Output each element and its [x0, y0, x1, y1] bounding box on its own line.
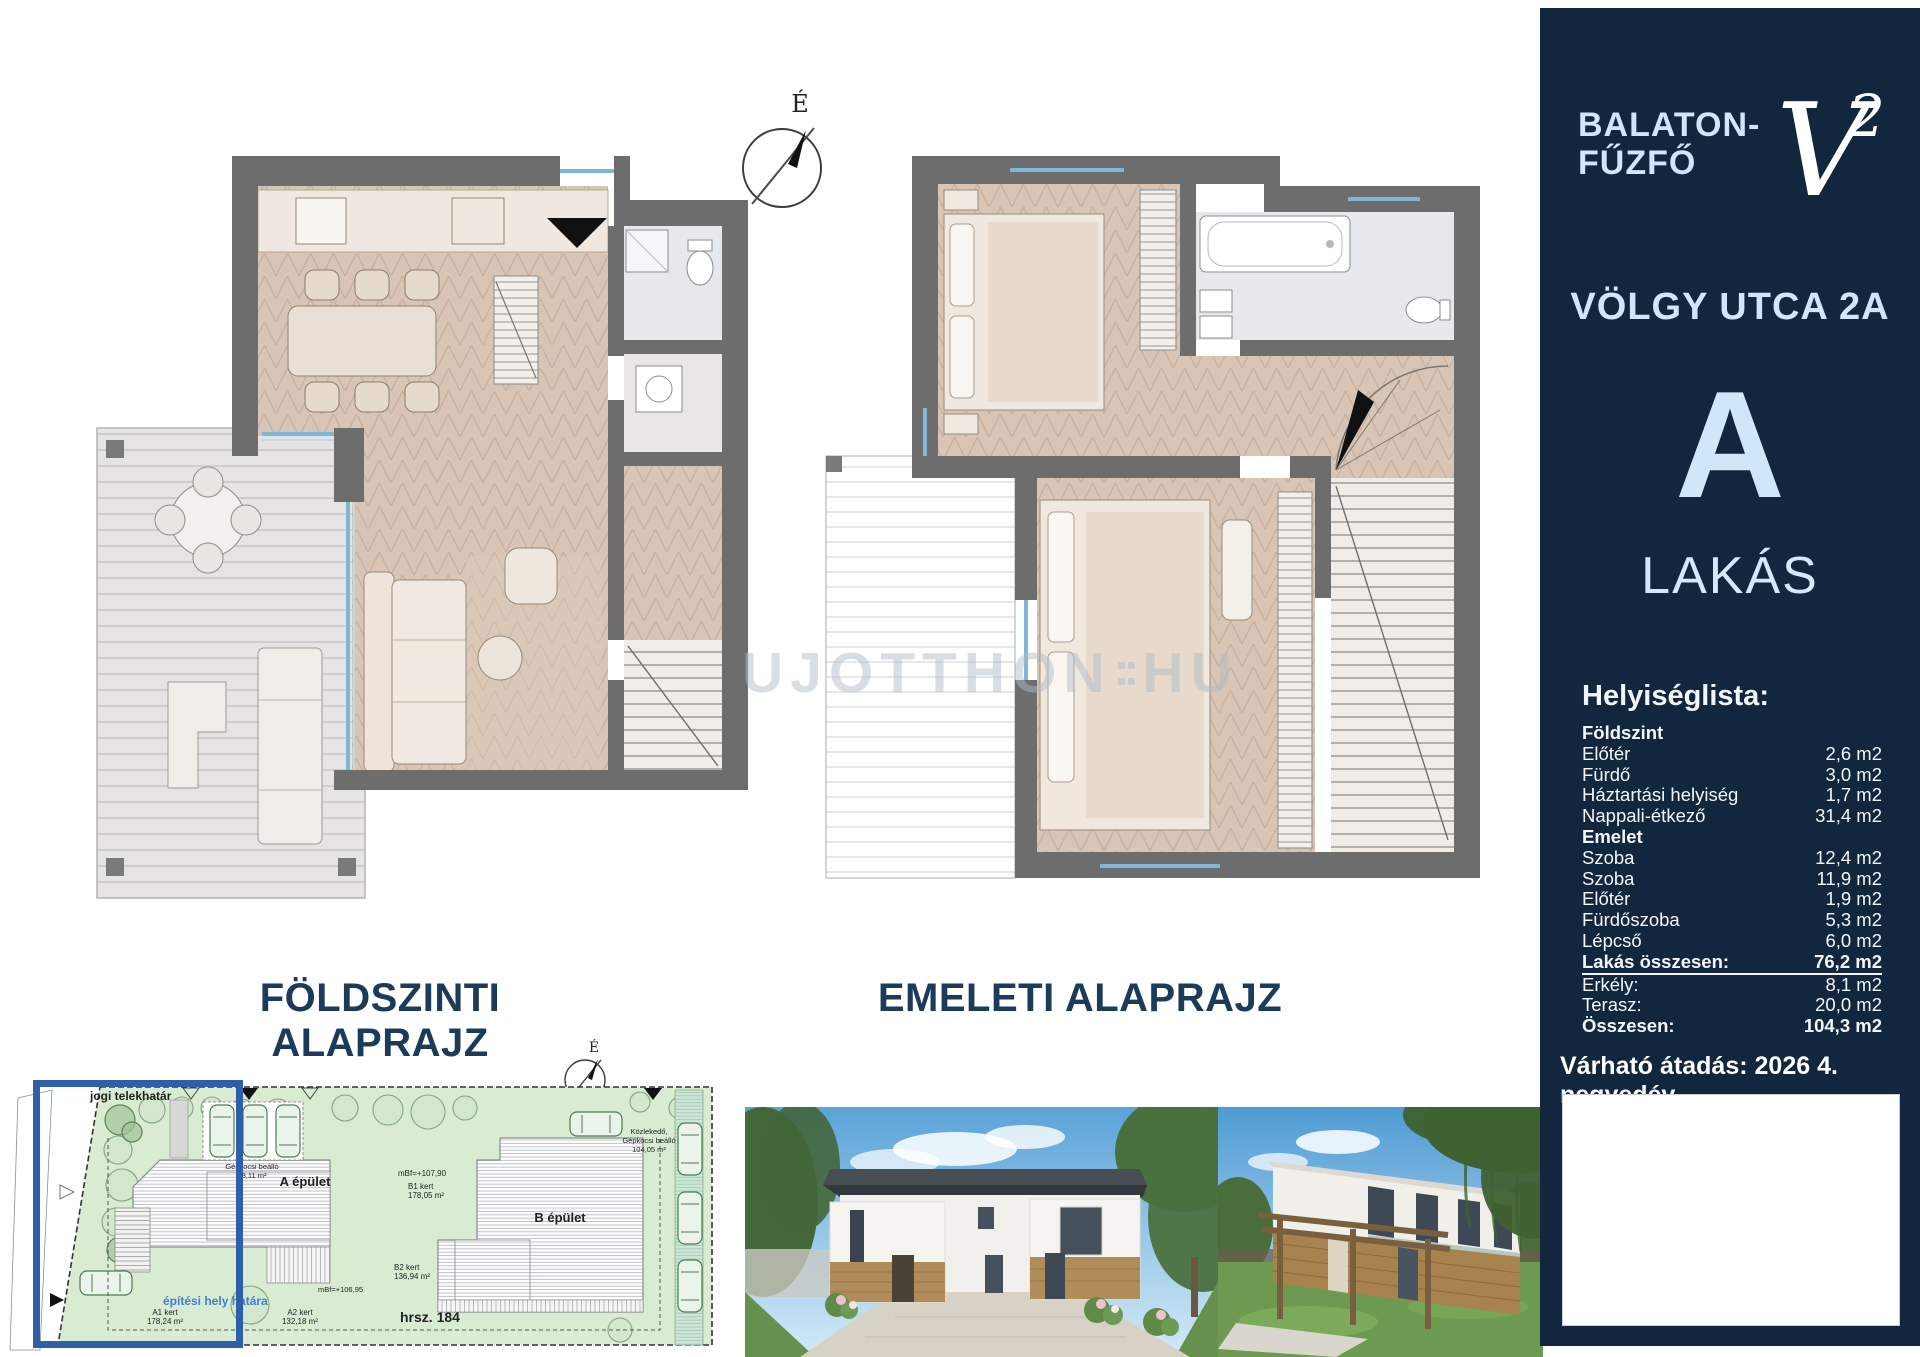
north-compass: É: [743, 89, 821, 207]
bench: [1222, 520, 1252, 620]
room-list: Helyiséglista: Földszint Előtér2,6 m2 Fü…: [1582, 680, 1882, 1037]
room-row: Előtér1,9 m2: [1582, 889, 1882, 910]
upper-floor-plan: [826, 156, 1480, 878]
terrace-sofa: [258, 648, 322, 844]
svg-text:B2 kert: B2 kert: [394, 1263, 420, 1272]
room-row: Fürdőszoba5,3 m2: [1582, 910, 1882, 931]
street-address: VÖLGY UTCA 2A: [1540, 286, 1920, 329]
ground-floor-plan: [97, 156, 748, 898]
room-row: Fürdő3,0 m2: [1582, 765, 1882, 786]
exterior-render-front: [745, 1107, 1218, 1357]
watermark-part2: HU: [1143, 640, 1239, 706]
svg-text:mBf=+106,95: mBf=+106,95: [318, 1285, 363, 1294]
svg-text:104,05 m²: 104,05 m²: [632, 1145, 666, 1154]
wardrobe2: [1278, 492, 1312, 848]
armchair: [505, 548, 557, 604]
room-row: Terasz:20,0 m2: [1582, 995, 1882, 1016]
building-a-terrace: [267, 1247, 330, 1283]
room-row: Emelet: [1582, 827, 1882, 848]
unit-type: LAKÁS: [1540, 546, 1920, 606]
toilet-upper: [1406, 297, 1442, 323]
compass-letter: É: [791, 89, 809, 118]
parcel-number: hrsz. 184: [400, 1309, 460, 1325]
room-row: Nappali-étkező31,4 m2: [1582, 806, 1882, 827]
room-row: Háztartási helyiség1,7 m2: [1582, 785, 1882, 806]
svg-text:É: É: [589, 1038, 599, 1056]
toilet: [687, 251, 713, 285]
svg-text:Közlekedő,: Közlekedő,: [630, 1127, 667, 1136]
svg-text:132,18 m²: 132,18 m²: [282, 1317, 318, 1326]
project-name-line2: FŰZFŐ: [1578, 144, 1760, 182]
room-row: Erkély:8,1 m2: [1582, 975, 1882, 996]
logo-superscript: 2: [1848, 82, 1885, 150]
room-row: Lépcső6,0 m2: [1582, 931, 1882, 952]
svg-text:136,94 m²: 136,94 m²: [394, 1272, 430, 1281]
room-list-title: Helyiséglista:: [1582, 680, 1882, 713]
sofa: [364, 572, 466, 772]
svg-text:A2 kert: A2 kert: [287, 1308, 313, 1317]
room-row: Földszint: [1582, 723, 1882, 744]
room-row-total-flat: Lakás összesen:76,2 m2: [1582, 952, 1882, 975]
room-row-total-all: Összesen:104,3 m2: [1582, 1016, 1882, 1037]
exterior-render-garden: [1218, 1107, 1543, 1357]
floorplans-drawing: É: [0, 0, 1545, 1110]
dining-table: [288, 270, 439, 412]
svg-text:178,05 m²: 178,05 m²: [408, 1191, 444, 1200]
svg-text:Gépkocsi beálló: Gépkocsi beálló: [622, 1136, 675, 1145]
bathtub: [1200, 216, 1350, 272]
building-b-label: B épület: [534, 1210, 586, 1225]
unit-letter: A: [1540, 358, 1920, 533]
empty-photo-frame: [1562, 1094, 1900, 1326]
kitchen-sink: [296, 198, 346, 244]
watermark-dots: [1118, 658, 1133, 688]
house-front: [823, 1169, 1147, 1302]
wardrobe1: [1140, 190, 1176, 350]
watermark-part1: UJOTTHON: [742, 640, 1112, 706]
svg-text:B1 kert: B1 kert: [408, 1182, 434, 1191]
pouf: [478, 636, 522, 680]
svg-text:mBf=+107,90: mBf=+107,90: [398, 1169, 447, 1178]
hall-floor: [624, 466, 722, 640]
building-a-label: A épület: [280, 1174, 331, 1189]
washbasin: [1200, 290, 1232, 312]
v2-logo: V 2: [1776, 88, 1886, 238]
room-row: Szoba12,4 m2: [1582, 848, 1882, 869]
project-name-line1: BALATON-: [1578, 106, 1760, 144]
upper-floor-label: EMELETI ALAPRAJZ: [870, 976, 1290, 1021]
unit-a-highlight-box: [33, 1080, 243, 1348]
project-name: BALATON- FŰZFŐ: [1578, 106, 1760, 182]
room-row: Előtér2,6 m2: [1582, 744, 1882, 765]
bed-1: [944, 190, 1104, 434]
info-sidebar: BALATON- FŰZFŐ V 2 VÖLGY UTCA 2A A LAKÁS…: [1540, 8, 1920, 1346]
ground-floor-label: FÖLDSZINTI ALAPRAJZ: [170, 976, 590, 1066]
washing-machine: [636, 366, 682, 412]
room-row: Szoba11,9 m2: [1582, 869, 1882, 890]
watermark: UJOTTHON HU: [742, 640, 1239, 706]
car-b: [570, 1112, 622, 1136]
